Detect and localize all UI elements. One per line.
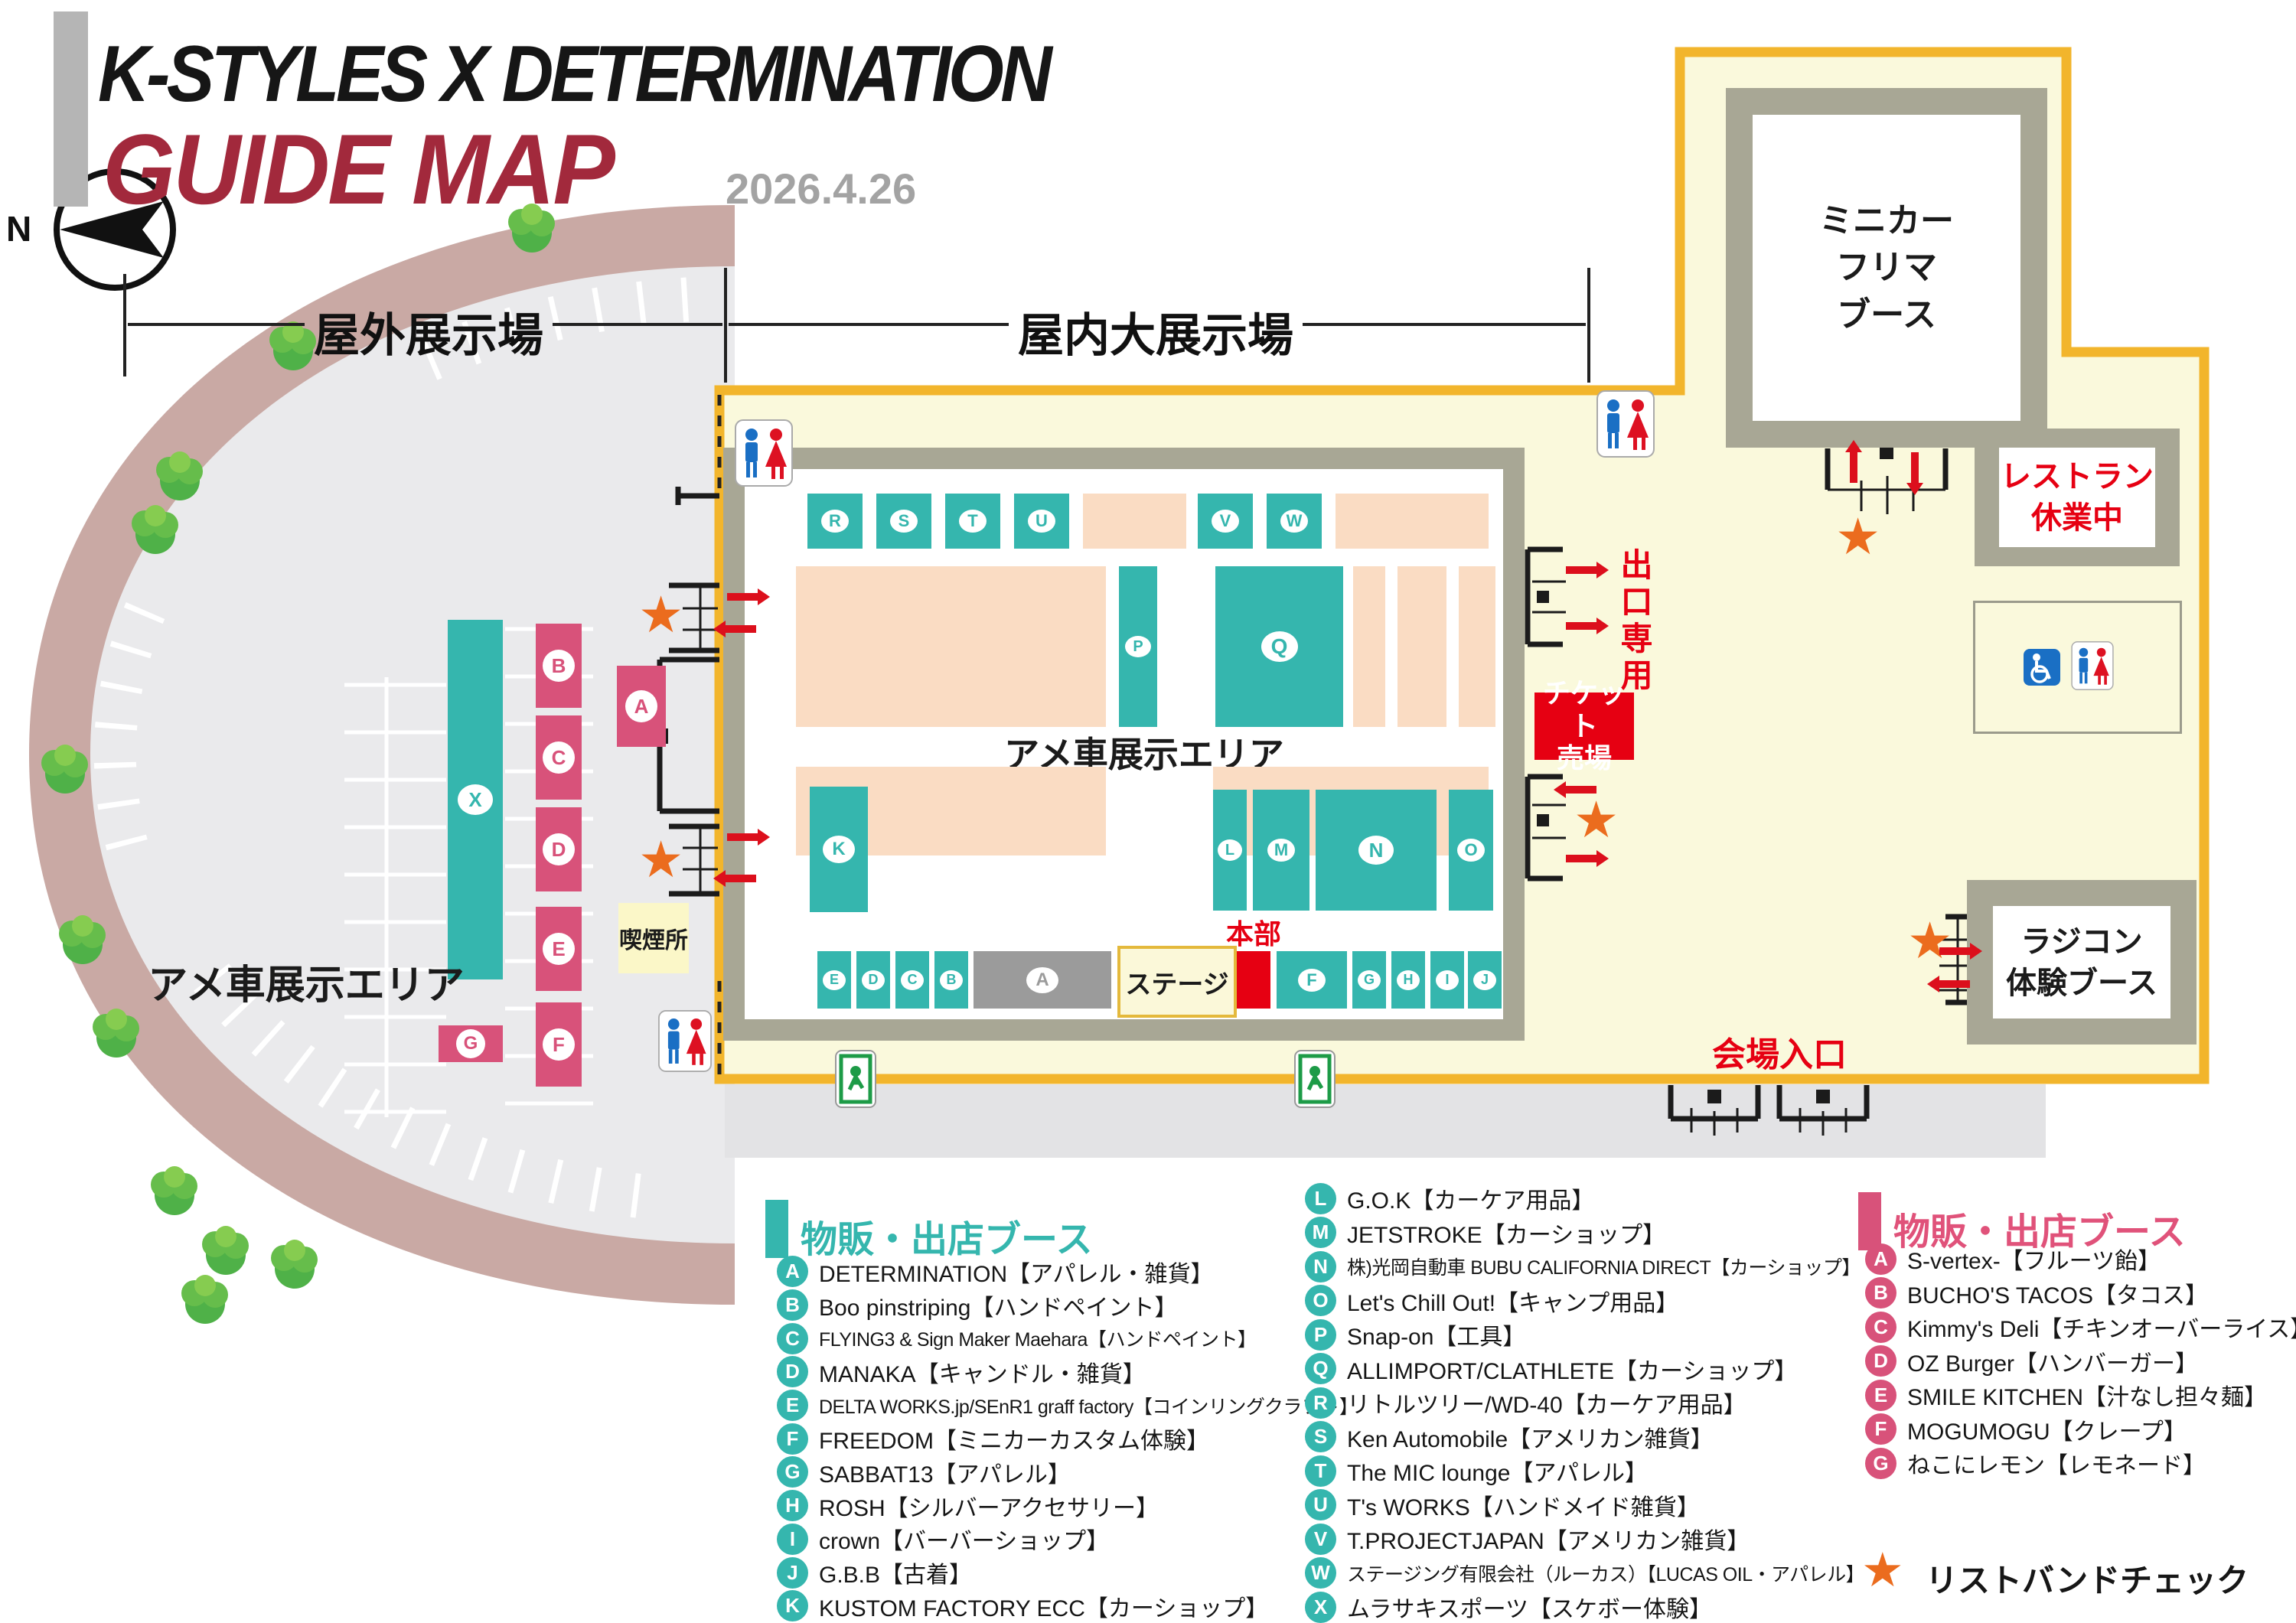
wristband-check-star: ★ [638,589,683,640]
toilet-icon [735,419,793,490]
flow-arrow-up [1850,452,1857,483]
outdoor-car-area-label: アメ車展示エリア [138,953,475,1010]
legend-item: Gねこにレモン【レモネード】 [1865,1446,2296,1481]
outdoor-section-label: 屋外展示場 [276,298,582,365]
wristband-check-star: ★ [1835,511,1880,562]
booth-C-indoor: C [895,951,929,1009]
flow-arrow-left [726,875,756,882]
booth-E-indoor: E [817,951,851,1009]
legend-item: DMANAKA【キャンドル・雑貨】 [777,1355,1358,1389]
flow-arrow-right [727,593,758,601]
legend-item: Rリトルツリー/WD-40【カーケア用品】 [1305,1386,1864,1420]
exit-arrow-right [1566,622,1596,630]
legend-item: SKen Automobile【アメリカン雑貨】 [1305,1420,1864,1455]
flow-arrow-left [1939,980,1970,988]
booth-I-indoor: I [1430,951,1464,1009]
booth-Q: Q [1215,566,1343,727]
legend-item: VT.PROJECTJAPAN【アメリカン雑貨】 [1305,1522,1864,1556]
exit-arrow-right [1566,566,1596,574]
legend-item: AS-vertex-【フルーツ飴】 [1865,1242,2296,1276]
legend-item: Xムラサキスポーツ【スケボー体験】 [1305,1590,1864,1623]
booth-W: W [1267,494,1322,549]
legend-item: BBoo pinstriping【ハンドペイント】 [777,1289,1358,1322]
booth-M: M [1253,790,1309,911]
wristband-check-star: ★ [638,834,683,885]
legend-item: KKUSTOM FACTORY ECC【カーショップ】 [777,1589,1358,1623]
legend-item: GSABBAT13【アパレル】 [777,1455,1358,1489]
car-display-block [1459,566,1495,727]
event-date: 2026.4.26 [726,164,916,213]
outdoor-ring [29,205,735,1305]
booth-H-indoor: H [1391,951,1425,1009]
booth-E-outdoor: E [536,907,582,991]
toilet-icon [2071,641,2114,694]
restaurant-closed: レストラン 休業中 [1999,448,2155,547]
booth-O: O [1449,790,1493,911]
legend-item: HROSH【シルバーアクセサリー】 [777,1489,1358,1523]
legend-teal-header-bar [765,1200,788,1258]
car-display-block [796,566,1106,727]
page-title: K-STYLES X DETERMINATION [98,29,1049,120]
legend-item: Wステージング有限会社（ルーカス）【LUCAS OIL・アパレル】 [1305,1556,1864,1591]
flow-arrow-down [1911,452,1919,483]
booth-V: V [1198,494,1253,549]
emergency-exit-icon [1294,1050,1336,1112]
booth-T: T [945,494,1000,549]
booth-F-outdoor: F [536,1002,582,1087]
booth-G-outdoor: G [439,1025,503,1062]
wristband-check-note: リストバンドチェック [1926,1555,2249,1602]
flow-arrow-right [1566,855,1596,862]
booth-K: K [810,787,868,912]
flow-arrow-left [726,625,756,633]
car-display-block [1353,566,1385,727]
legend-item: EDELTA WORKS.jp/SEnR1 graff factory【コインリ… [777,1389,1358,1423]
booth-B-indoor: B [934,951,968,1009]
booth-N: N [1316,790,1437,911]
toilet-icon [658,1010,712,1076]
wristband-check-star: ★ [1861,1547,1904,1595]
booth-P: P [1119,566,1157,727]
hq-label: 本部 [1204,912,1303,952]
rc-experience-booth: ラジコン 体験ブース [1993,906,2170,1018]
booth-A-indoor: A [974,951,1111,1009]
legend-item: FMOGUMOGU【クレープ】 [1865,1413,2296,1447]
legend-item: DOZ Burger【ハンバーガー】 [1865,1344,2296,1379]
car-display-block [1083,494,1186,549]
legend-item: N株)光岡自動車 BUBU CALIFORNIA DIRECT【カーショップ】 [1305,1250,1864,1284]
legend-teal-col2: LG.O.K【カーケア用品】MJETSTROKE【カーショップ】N株)光岡自動車… [1305,1181,1864,1623]
booth-S: S [876,494,931,549]
booth-U: U [1014,494,1069,549]
booth-C-outdoor: C [536,715,582,800]
legend-item: FFREEDOM【ミニカーカスタム体験】 [777,1422,1358,1455]
legend-item: Icrown【バーバーショップ】 [777,1523,1358,1556]
legend-item: CFLYING3 & Sign Maker Maehara【ハンドペイント】 [777,1322,1358,1355]
flow-arrow-left [1566,786,1596,794]
wristband-check-star: ★ [1907,915,1952,966]
legend-item: ADETERMINATION【アパレル・雑貨】 [777,1255,1358,1289]
booth-D-indoor: D [856,951,890,1009]
booth-F-indoor: F [1277,951,1347,1009]
legend-item: MJETSTROKE【カーショップ】 [1305,1216,1864,1250]
car-display-block [1336,494,1489,549]
booth-D-outdoor: D [536,807,582,891]
flow-arrow-right [1939,947,1970,955]
legend-item: JG.B.B【古着】 [777,1556,1358,1589]
smoking-area: 喫煙所 [618,903,689,973]
booth-R: R [807,494,863,549]
legend-item: UT's WORKS【ハンドメイド雑貨】 [1305,1488,1864,1523]
minicar-flea-market-booth: ミニカー フリマ ブース [1753,115,2020,421]
guide-map-page: K-STYLES X DETERMINATION GUIDE MAP 2026.… [0,0,2296,1623]
compass-north-label: N [6,208,31,249]
booth-X-outdoor: X [448,620,503,979]
legend-item: TThe MIC lounge【アパレル】 [1305,1454,1864,1488]
entrance-label: 会場入口 [1668,1027,1890,1076]
booth-B-outdoor: B [536,624,582,708]
wheelchair-icon [2024,649,2060,689]
legend-item: QALLIMPORT/CLATHLETE【カーショップ】 [1305,1352,1864,1387]
booth-G-indoor: G [1352,951,1386,1009]
indoor-section-label: 屋内大展示場 [980,298,1332,365]
flow-arrow-right [727,833,758,841]
legend-item: ESMILE KITCHEN【汁なし担々麺】 [1865,1378,2296,1413]
emergency-exit-icon [835,1050,876,1112]
legend-teal-col1: ADETERMINATION【アパレル・雑貨】BBoo pinstriping【… [777,1255,1358,1623]
booth-L: L [1213,790,1247,911]
toilet-icon [1596,390,1655,461]
booth-J-indoor: J [1468,951,1502,1009]
legend-item: BBUCHO'S TACOS【タコス】 [1865,1276,2296,1311]
stage: ステージ [1117,946,1237,1018]
ticket-office: チケット 売場 [1534,693,1634,760]
legend-item: LG.O.K【カーケア用品】 [1305,1181,1864,1216]
page-subtitle: GUIDE MAP [103,112,613,227]
legend-pink-col: AS-vertex-【フルーツ飴】BBUCHO'S TACOS【タコス】CKim… [1865,1242,2296,1481]
wristband-check-star: ★ [1574,794,1619,845]
booth-A-outdoor: A [617,666,666,747]
legend-item: PSnap-on【工具】 [1305,1318,1864,1352]
car-display-block [1397,566,1446,727]
legend-item: CKimmy's Deli【チキンオーバーライス】 [1865,1310,2296,1344]
legend-item: OLet's Chill Out!【キャンプ用品】 [1305,1284,1864,1318]
hq-booth [1237,951,1270,1009]
header-accent-bar [54,11,88,207]
